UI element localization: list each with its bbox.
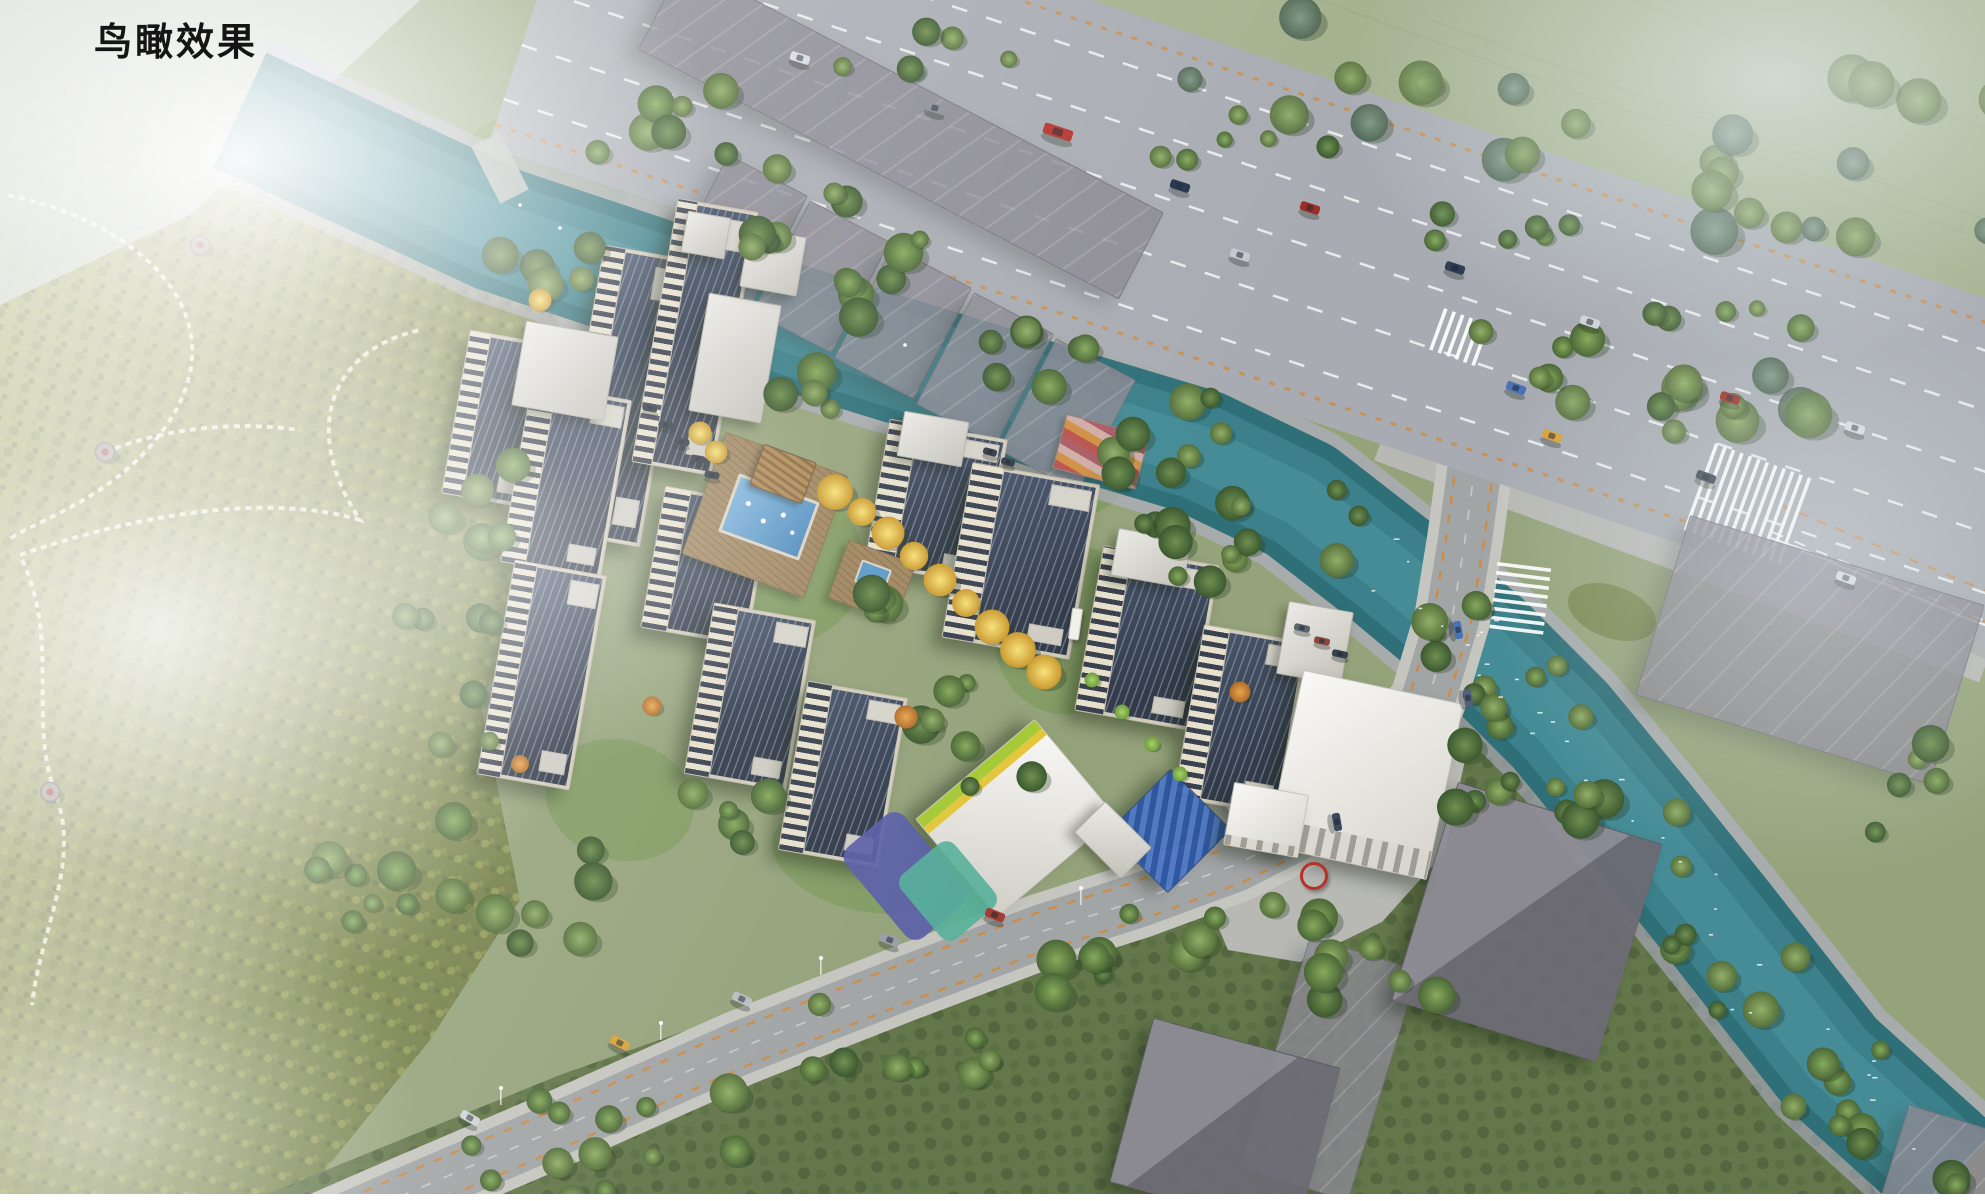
tree (392, 603, 418, 629)
tree (1708, 1001, 1726, 1019)
tree (848, 498, 876, 526)
tree (476, 894, 514, 932)
tree (529, 289, 552, 312)
tree (823, 183, 845, 205)
tree (829, 1047, 858, 1076)
tree (961, 777, 980, 796)
tree (1168, 566, 1187, 585)
tree (480, 732, 499, 751)
tree (1734, 198, 1765, 229)
tree (1829, 1115, 1851, 1137)
water-sparkle (1749, 1012, 1752, 1014)
tree (1781, 942, 1811, 972)
tree (1418, 976, 1455, 1013)
tree (1647, 392, 1676, 421)
tree (651, 115, 686, 150)
tree (1546, 778, 1565, 797)
tree (1896, 78, 1941, 123)
tree (1568, 704, 1593, 729)
tree (461, 474, 494, 507)
water-sparkle (1565, 741, 1569, 743)
tree (720, 1135, 751, 1166)
car (1330, 649, 1350, 664)
tree (1437, 788, 1474, 825)
tree (1979, 79, 1985, 120)
tree (920, 708, 944, 732)
tree (1116, 417, 1151, 452)
tree (1085, 673, 1100, 688)
tree (479, 610, 504, 635)
water-sparkle (1870, 1099, 1876, 1101)
tree (1316, 135, 1339, 158)
tree (1715, 301, 1736, 322)
tree (496, 448, 531, 483)
tree (1424, 229, 1446, 251)
tree (488, 523, 516, 551)
water-sparkle (1827, 1028, 1830, 1030)
tree (643, 1147, 662, 1166)
tree (1119, 904, 1139, 924)
tree (834, 269, 862, 297)
tree (636, 1097, 656, 1117)
swan (558, 226, 562, 230)
car (1833, 570, 1859, 592)
tree (1150, 146, 1172, 168)
car (1447, 620, 1464, 642)
tree (1411, 603, 1448, 640)
car (456, 1109, 483, 1133)
tree (1836, 217, 1875, 256)
tree (1771, 211, 1803, 243)
water-sparkle (1679, 861, 1682, 863)
tree (872, 517, 905, 550)
tree (1670, 856, 1691, 877)
car (1292, 623, 1312, 638)
car (999, 457, 1017, 473)
tree (911, 231, 929, 249)
tree (569, 266, 594, 291)
tree (1706, 961, 1737, 992)
tree (460, 680, 488, 708)
tree (817, 474, 853, 510)
tree (1865, 822, 1886, 843)
water-sparkle (1494, 620, 1499, 622)
car (1693, 469, 1719, 491)
tree (1749, 300, 1765, 316)
tree (1031, 369, 1066, 404)
tree (1642, 302, 1666, 326)
car (922, 101, 948, 122)
water-sparkle (1515, 679, 1519, 681)
car (728, 991, 754, 1014)
car (1312, 636, 1332, 651)
tree (1480, 694, 1507, 721)
tree (951, 731, 981, 761)
tree (574, 232, 606, 264)
tree (1156, 458, 1186, 488)
car (1227, 248, 1253, 269)
tree (521, 900, 549, 928)
street-light-pole (500, 1089, 502, 1105)
water-sparkle (1662, 837, 1665, 839)
tree (1260, 130, 1277, 147)
tree (1229, 105, 1248, 124)
tree (979, 330, 1003, 354)
car (1167, 179, 1193, 200)
tree (1712, 114, 1753, 155)
tree (1194, 565, 1227, 598)
tree (1924, 768, 1950, 794)
tree (1177, 67, 1202, 92)
water-sparkle (1714, 908, 1717, 910)
tree (377, 851, 416, 890)
tree (900, 542, 928, 570)
tree (1101, 456, 1135, 490)
tree (1787, 314, 1815, 342)
tree (894, 705, 917, 728)
tree (1319, 543, 1353, 577)
tree (924, 564, 957, 597)
tree (738, 233, 765, 260)
car (689, 454, 708, 469)
water-sparkle (1466, 644, 1470, 646)
tree (1026, 654, 1061, 689)
street-light-head (659, 1021, 663, 1025)
water-sparkle (1485, 663, 1490, 665)
tree (1260, 892, 1286, 918)
tree (1348, 506, 1368, 526)
tree (542, 1148, 573, 1179)
tree (833, 57, 852, 76)
tree (1421, 641, 1452, 672)
tree (1000, 51, 1017, 68)
tree (1230, 682, 1251, 703)
water-sparkle (1709, 934, 1713, 936)
tree (428, 732, 453, 757)
tree (1743, 991, 1780, 1028)
water-sparkle (1584, 780, 1588, 782)
water-sparkle (1631, 820, 1634, 822)
tree (1217, 132, 1233, 148)
tree (1270, 95, 1309, 134)
page-title: 鸟瞰效果 (94, 11, 258, 66)
tree (1071, 334, 1099, 362)
tree (506, 929, 533, 956)
tree (1525, 667, 1545, 687)
street-light-head (1079, 886, 1083, 890)
tree (574, 862, 612, 900)
tree (1231, 496, 1251, 516)
tree (1573, 781, 1601, 809)
tree (1334, 62, 1366, 94)
tree (1078, 942, 1109, 973)
car (1297, 201, 1323, 222)
tree (548, 1102, 570, 1124)
water-sparkle (1912, 1148, 1915, 1150)
tree (1359, 936, 1383, 960)
tree (1304, 953, 1343, 992)
tree (1145, 737, 1160, 752)
street-light-pole (660, 1024, 662, 1040)
tree (1663, 798, 1691, 826)
tree (435, 878, 469, 912)
tree (1158, 525, 1192, 559)
tree (1690, 207, 1738, 255)
street-light-head (819, 956, 823, 960)
tree (751, 779, 786, 814)
tree (839, 297, 878, 336)
water-sparkle (1441, 625, 1443, 627)
tree (912, 18, 940, 46)
tree (461, 1135, 481, 1155)
tree (678, 778, 709, 809)
tree (1662, 419, 1686, 443)
car (1842, 421, 1868, 442)
tree (435, 802, 473, 840)
tree (1016, 761, 1047, 792)
tree (1210, 422, 1232, 444)
water-sparkle (1619, 779, 1625, 781)
car (1326, 812, 1343, 834)
water-sparkle (1371, 590, 1375, 592)
tree (1785, 391, 1832, 438)
tree (1505, 137, 1540, 172)
car (606, 1034, 633, 1058)
tree (1169, 383, 1206, 420)
tree (1837, 147, 1870, 180)
bottom-white-edge (0, 1194, 1985, 1201)
car (877, 932, 903, 954)
tree (853, 575, 891, 613)
water-sparkle (1537, 712, 1542, 714)
tree (714, 142, 738, 166)
tree (1691, 170, 1732, 211)
tree (577, 836, 605, 864)
car (1442, 261, 1468, 282)
tree (672, 96, 693, 117)
tree (688, 421, 711, 444)
aerial-rendering-scene: 鸟瞰效果 (0, 0, 1985, 1201)
tree (595, 1105, 623, 1133)
tree (719, 801, 738, 820)
tree (482, 237, 519, 274)
tree (1846, 1128, 1877, 1159)
car (641, 403, 660, 418)
tree (1221, 545, 1239, 563)
water-sparkle (1867, 1074, 1870, 1076)
tree (1134, 514, 1154, 534)
tree (1399, 61, 1444, 106)
tree (1887, 773, 1911, 797)
tree (1547, 656, 1568, 677)
tree (304, 857, 330, 883)
tree (1498, 230, 1517, 249)
tree (1447, 728, 1482, 763)
tree (428, 501, 461, 534)
car (787, 51, 813, 72)
tree (1529, 366, 1551, 388)
tree (1013, 317, 1040, 344)
tree (1469, 319, 1494, 344)
tree (1752, 357, 1789, 394)
car (703, 470, 722, 485)
water-sparkle (1477, 635, 1480, 637)
tree (933, 675, 965, 707)
swan (903, 343, 907, 347)
water-sparkle (1530, 733, 1535, 735)
car (1039, 122, 1076, 150)
tree (763, 154, 792, 183)
tree (1974, 217, 1985, 244)
tree (578, 1137, 611, 1170)
water-sparkle (1730, 1009, 1734, 1011)
tree (897, 55, 924, 82)
tree (341, 910, 364, 933)
water-sparkle (1407, 561, 1409, 563)
tree (730, 830, 755, 855)
tree (808, 993, 831, 1016)
tree (1801, 217, 1825, 241)
car (673, 437, 692, 452)
tree (1807, 1047, 1840, 1080)
water-sparkle (1480, 631, 1483, 633)
tree (705, 441, 728, 464)
street-light-head (499, 1086, 503, 1090)
tree (763, 377, 798, 412)
tree (1462, 591, 1491, 620)
tree (801, 380, 827, 406)
tree (1501, 772, 1520, 791)
tree (1561, 109, 1591, 139)
tree (978, 1049, 1001, 1072)
swan (518, 203, 522, 207)
tree (1559, 214, 1581, 236)
car (1503, 380, 1529, 402)
tree (703, 73, 739, 109)
car (981, 447, 999, 463)
tree (1871, 1040, 1890, 1059)
tree (952, 589, 980, 617)
water-sparkle (1478, 674, 1481, 676)
tree (1498, 73, 1530, 105)
water-sparkle (1498, 696, 1503, 698)
tree (480, 1169, 502, 1191)
tree (710, 1073, 748, 1111)
tree (1351, 104, 1389, 142)
tree (642, 696, 661, 715)
car (1539, 428, 1565, 450)
car (982, 907, 1008, 929)
water-sparkle (1715, 874, 1718, 876)
tree (1848, 61, 1894, 107)
tree (965, 1027, 986, 1048)
tree (1176, 149, 1198, 171)
tree (1115, 705, 1130, 720)
tree (883, 1053, 911, 1081)
tree (1173, 767, 1188, 782)
tree (1912, 725, 1949, 762)
water-sparkle (1872, 1060, 1876, 1062)
tree (1297, 910, 1329, 942)
street-light-pole (820, 959, 822, 975)
tree (983, 363, 1011, 391)
tree (1389, 970, 1412, 993)
water-sparkle (1418, 608, 1422, 610)
tree (396, 893, 417, 914)
tree (363, 894, 381, 912)
tree (1430, 201, 1455, 226)
tree (585, 140, 609, 164)
water-sparkle (1551, 721, 1555, 723)
tree (1780, 1094, 1806, 1120)
water-sparkle (1872, 1077, 1877, 1079)
tree (1945, 1173, 1968, 1196)
tree (1525, 215, 1549, 239)
tree (1200, 388, 1220, 408)
water-sparkle (1394, 538, 1400, 540)
tree (1034, 973, 1072, 1011)
tree (511, 755, 529, 773)
water-sparkle (1757, 964, 1762, 966)
tree (800, 1056, 826, 1082)
tree (1662, 936, 1681, 955)
street-light-pole (1080, 889, 1082, 905)
vegetation-and-vehicles-layer (0, 0, 1985, 1201)
tree (1204, 907, 1226, 929)
tree (1327, 480, 1347, 500)
tree (563, 922, 597, 956)
car (657, 420, 676, 435)
